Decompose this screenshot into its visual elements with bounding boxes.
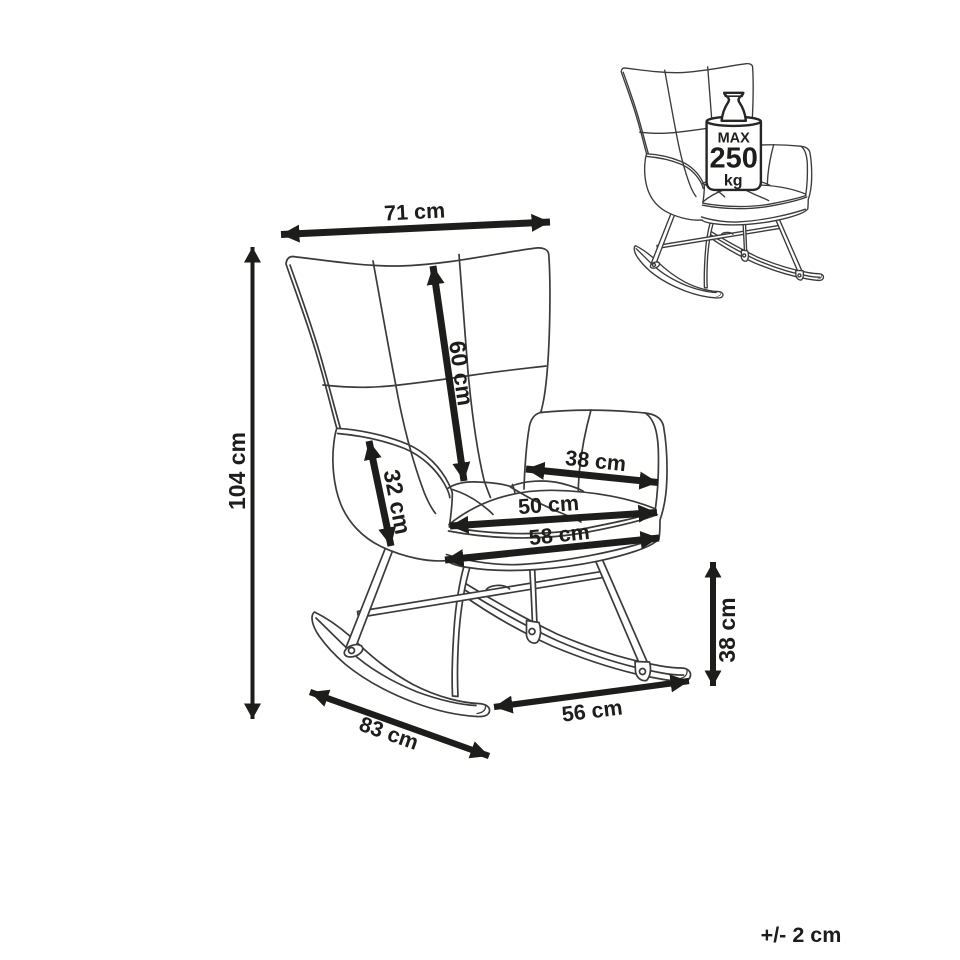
- svg-text:38 cm: 38 cm: [714, 597, 740, 662]
- svg-text:71 cm: 71 cm: [384, 198, 446, 225]
- svg-text:250: 250: [710, 143, 758, 175]
- svg-text:kg: kg: [724, 173, 743, 190]
- svg-text:104 cm: 104 cm: [224, 432, 250, 510]
- svg-text:+/- 2 cm: +/- 2 cm: [761, 923, 842, 947]
- svg-text:56 cm: 56 cm: [560, 695, 623, 726]
- svg-text:50 cm: 50 cm: [517, 491, 579, 519]
